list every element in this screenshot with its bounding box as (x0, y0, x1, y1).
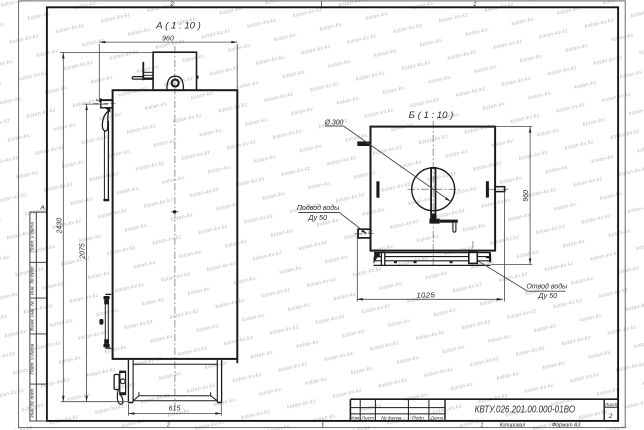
svg-text:Копировал: Копировал (499, 422, 525, 428)
svg-text:Б ( 1 : 10 ): Б ( 1 : 10 ) (409, 110, 454, 121)
svg-text:Ø 300: Ø 300 (324, 119, 344, 126)
svg-text:1: 1 (481, 422, 484, 428)
svg-text:Инв. № подл.: Инв. № подл. (29, 387, 35, 417)
svg-text:№ докум.: № докум. (381, 415, 403, 421)
svg-text:2: 2 (608, 413, 613, 420)
svg-text:1025: 1025 (416, 290, 435, 299)
svg-text:Подп. и дата: Подп. и дата (29, 343, 35, 374)
svg-text:Ду 50: Ду 50 (307, 213, 327, 222)
svg-text:960: 960 (162, 35, 174, 42)
svg-text:615: 615 (169, 406, 181, 413)
svg-text:Подп.: Подп. (412, 415, 425, 421)
svg-text:Подвод воды: Подвод воды (297, 204, 340, 212)
svg-text:Подп. и дата: Подп. и дата (29, 222, 35, 253)
svg-text:Изм.: Изм. (350, 415, 360, 421)
svg-text:Инв. № дубл.: Инв. № дубл. (29, 265, 35, 295)
svg-text:Ду 50: Ду 50 (537, 291, 557, 300)
svg-text:Лист: Лист (361, 415, 375, 421)
svg-text:2: 2 (166, 422, 170, 428)
svg-text:Формат А3: Формат А3 (552, 422, 580, 428)
svg-text:КВТУ.026.201.00.000-01ВО: КВТУ.026.201.00.000-01ВО (475, 404, 575, 415)
svg-text:960: 960 (523, 190, 530, 202)
svg-text:А: А (39, 205, 45, 212)
svg-text:Взам. инв. №: Взам. инв. № (29, 301, 35, 331)
svg-text:2075: 2075 (80, 243, 87, 260)
svg-text:Дата: Дата (429, 415, 443, 421)
svg-text:2430: 2430 (56, 218, 63, 235)
svg-text:А ( 1 : 10 ): А ( 1 : 10 ) (155, 20, 201, 31)
svg-text:Отвод воды: Отвод воды (526, 283, 568, 291)
svg-text:Лист: Лист (604, 402, 618, 408)
